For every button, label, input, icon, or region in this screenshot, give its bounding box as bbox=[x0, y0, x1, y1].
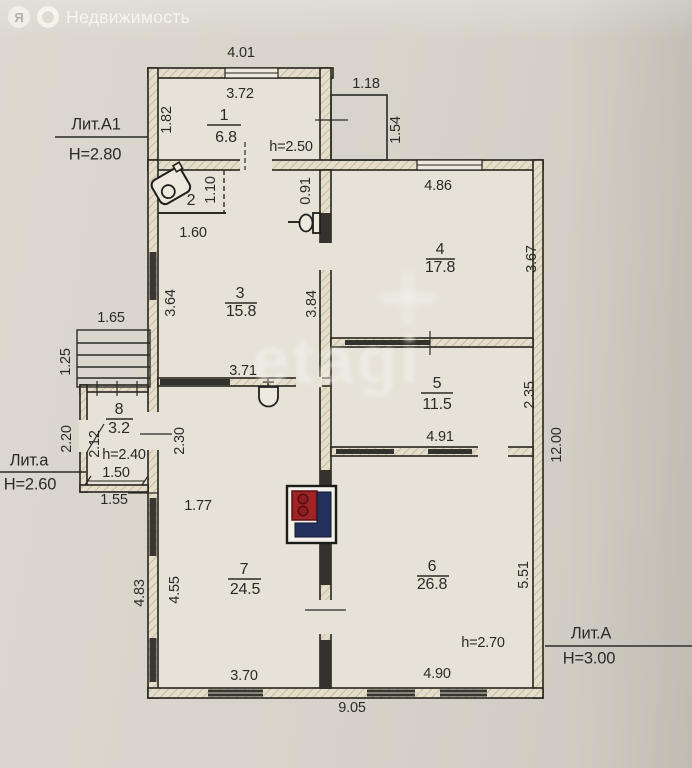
dim-room1-top: 3.72 bbox=[226, 86, 253, 102]
room1-area: 6.8 bbox=[215, 129, 237, 147]
room8-number: 8 bbox=[115, 401, 124, 419]
room2-number: 2 bbox=[187, 192, 196, 210]
dim-room8-left: 2.12 bbox=[87, 430, 103, 457]
dim-room8-outer-left: 2.20 bbox=[59, 425, 75, 452]
dim-room7-upper-left: 2.30 bbox=[172, 427, 188, 454]
litA-label: Лит.А bbox=[571, 625, 611, 644]
room3-number: 3 bbox=[236, 285, 245, 303]
dim-room5-right: 2.35 bbox=[522, 381, 538, 408]
yandex-logo-icon: Я bbox=[8, 6, 30, 28]
dim-porch-top: 1.18 bbox=[352, 76, 379, 92]
dim-room1-left: 1.82 bbox=[159, 106, 175, 133]
steps bbox=[77, 330, 150, 387]
yandex-realty-watermark: Я Недвижимость bbox=[8, 6, 190, 28]
lita-height: Н=2.60 bbox=[4, 476, 56, 495]
litA1-height: Н=2.80 bbox=[69, 146, 121, 165]
room4-number: 4 bbox=[436, 241, 445, 259]
room8-height-note: h=2.40 bbox=[102, 447, 146, 463]
dim-room3-left: 3.64 bbox=[163, 289, 179, 316]
room1-number: 1 bbox=[220, 107, 229, 125]
dim-room7-outer-left: 4.83 bbox=[132, 579, 148, 606]
dim-room7-left: 4.55 bbox=[167, 576, 183, 603]
dim-steps-top: 1.65 bbox=[97, 310, 124, 326]
dim-room7-top: 1.77 bbox=[184, 498, 211, 514]
dim-room5-bottom: 4.91 bbox=[426, 429, 453, 445]
dim-room4-top: 4.86 bbox=[424, 178, 451, 194]
dim-porch-right: 1.54 bbox=[388, 116, 404, 143]
etagi-watermark: etagi bbox=[252, 322, 421, 398]
dim-room8-bottom: 1.50 bbox=[102, 465, 129, 481]
dim-room2-right: 1.10 bbox=[203, 176, 219, 203]
room7-area: 24.5 bbox=[230, 581, 260, 599]
realty-ring-icon bbox=[37, 6, 59, 28]
room4-area: 17.8 bbox=[425, 259, 455, 277]
etagi-cross-icon bbox=[381, 271, 435, 325]
litA-height: Н=3.00 bbox=[563, 650, 615, 669]
room6-number: 6 bbox=[428, 558, 437, 576]
dim-room3-bottom: 3.71 bbox=[229, 363, 256, 379]
porch-outline bbox=[331, 95, 387, 160]
room8-area: 3.2 bbox=[108, 420, 130, 438]
dim-wc-right: 0.91 bbox=[298, 177, 314, 204]
dim-room2-bottom: 1.60 bbox=[179, 225, 206, 241]
floorplan-photo: Я Недвижимость bbox=[0, 0, 692, 768]
dim-right-total: 12.00 bbox=[549, 427, 565, 462]
dim-bottom-total: 9.05 bbox=[338, 700, 365, 716]
room3-area: 15.8 bbox=[226, 303, 256, 321]
room1-height-note: h=2.50 bbox=[269, 139, 313, 155]
dim-room3-right: 3.84 bbox=[304, 290, 320, 317]
room5-area: 11.5 bbox=[422, 396, 451, 414]
dim-room6-right: 5.51 bbox=[516, 561, 532, 588]
room5-number: 5 bbox=[433, 375, 442, 393]
toilet-icon bbox=[300, 213, 321, 233]
room6-height-note: h=2.70 bbox=[461, 635, 505, 651]
stove-icon bbox=[287, 486, 336, 543]
lita-label: Лит.а bbox=[10, 452, 49, 471]
dim-annexe-top-outer: 4.01 bbox=[227, 45, 254, 61]
dim-steps-left: 1.25 bbox=[58, 348, 74, 375]
dim-room4-right: 3.67 bbox=[524, 245, 540, 272]
room6-area: 26.8 bbox=[417, 576, 447, 594]
dim-room8-bottom-outer: 1.55 bbox=[100, 492, 127, 508]
dim-room7-bottom: 3.70 bbox=[230, 668, 257, 684]
litA1-label: Лит.А1 bbox=[71, 116, 120, 135]
dim-room6-bottom: 4.90 bbox=[423, 666, 450, 682]
brand-name: Недвижимость bbox=[66, 7, 190, 28]
room7-number: 7 bbox=[240, 561, 249, 579]
